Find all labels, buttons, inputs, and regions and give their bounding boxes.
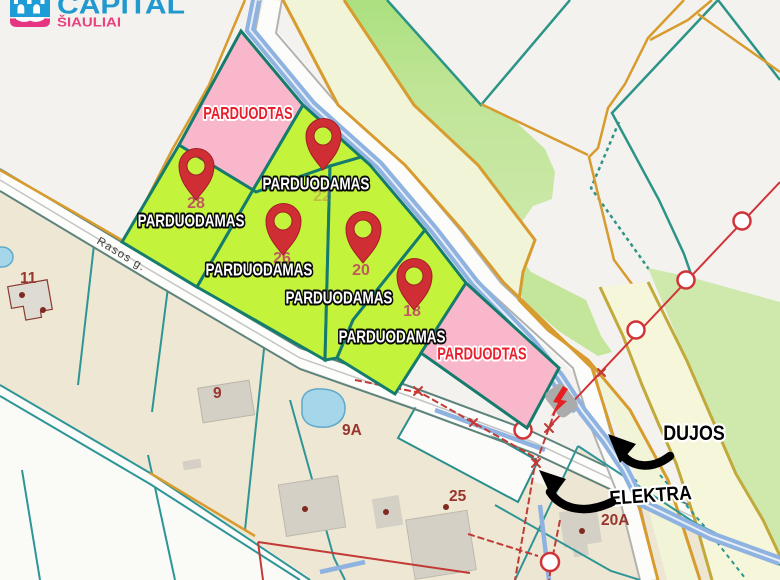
svg-text:PARDUODAMAS: PARDUODAMAS [206, 261, 313, 280]
svg-text:11: 11 [20, 270, 37, 287]
svg-text:20: 20 [352, 262, 370, 279]
svg-text:PARDUODAMAS: PARDUODAMAS [339, 328, 446, 347]
svg-text:PARDUODTAS: PARDUODTAS [437, 345, 526, 365]
svg-text:PARDUODAMAS: PARDUODAMAS [286, 289, 393, 308]
svg-text:ŠIAULIAI: ŠIAULIAI [57, 15, 121, 30]
svg-text:PARDUODTAS: PARDUODTAS [203, 104, 292, 124]
svg-text:9A: 9A [342, 422, 362, 439]
svg-text:DUJOS: DUJOS [663, 422, 724, 446]
svg-text:PARDUODAMAS: PARDUODAMAS [263, 175, 370, 194]
svg-text:20A: 20A [601, 512, 629, 529]
svg-text:25: 25 [449, 488, 467, 505]
svg-text:9: 9 [213, 385, 222, 402]
svg-text:PARDUODAMAS: PARDUODAMAS [138, 212, 245, 231]
